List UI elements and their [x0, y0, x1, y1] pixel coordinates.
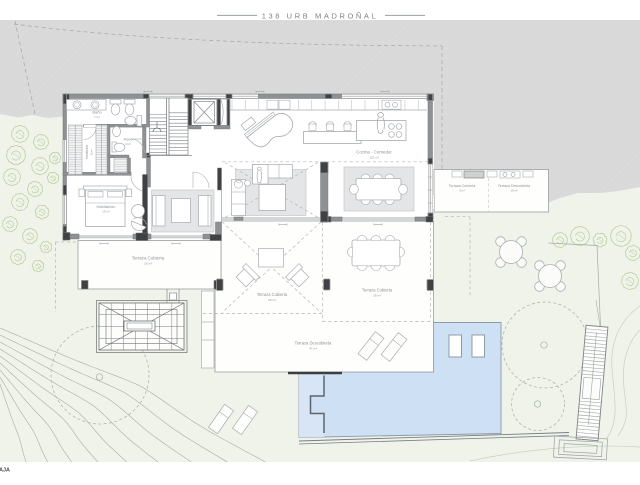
svg-text:7 m²: 7 m² [94, 115, 100, 119]
svg-text:28 m²: 28 m² [373, 293, 381, 297]
svg-text:Aseo: Aseo [123, 137, 133, 142]
svg-text:Terraza Cubierta: Terraza Cubierta [257, 292, 288, 297]
svg-text:Baño: Baño [92, 110, 102, 115]
svg-text:19 m²: 19 m² [510, 189, 517, 193]
svg-text:26 m²: 26 m² [268, 298, 276, 302]
svg-text:123 m²: 123 m² [369, 155, 378, 159]
svg-text:Terraza Descubierta: Terraza Descubierta [295, 341, 332, 346]
svg-text:3 m²: 3 m² [459, 189, 465, 193]
svg-text:4 m²: 4 m² [125, 142, 131, 146]
svg-text:8 m²: 8 m² [90, 149, 94, 155]
svg-text:Terraza Cubierta: Terraza Cubierta [449, 184, 476, 188]
svg-text:AJA: AJA [0, 468, 10, 474]
svg-text:15 m²: 15 m² [102, 210, 110, 214]
svg-text:Cocina - Comedor: Cocina - Comedor [356, 150, 392, 155]
svg-text:26 m²: 26 m² [144, 262, 152, 266]
svg-text:Terraza Cubierta: Terraza Cubierta [132, 256, 165, 261]
svg-text:Habitación: Habitación [97, 204, 116, 209]
svg-text:47 m²: 47 m² [309, 346, 317, 350]
svg-text:Terraza Cubierta: Terraza Cubierta [362, 288, 393, 293]
svg-text:Terraza Descubierta: Terraza Descubierta [498, 184, 530, 188]
svg-text:Vestidor: Vestidor [84, 144, 89, 159]
svg-text:138 URB MADROÑAL: 138 URB MADROÑAL [262, 12, 379, 21]
